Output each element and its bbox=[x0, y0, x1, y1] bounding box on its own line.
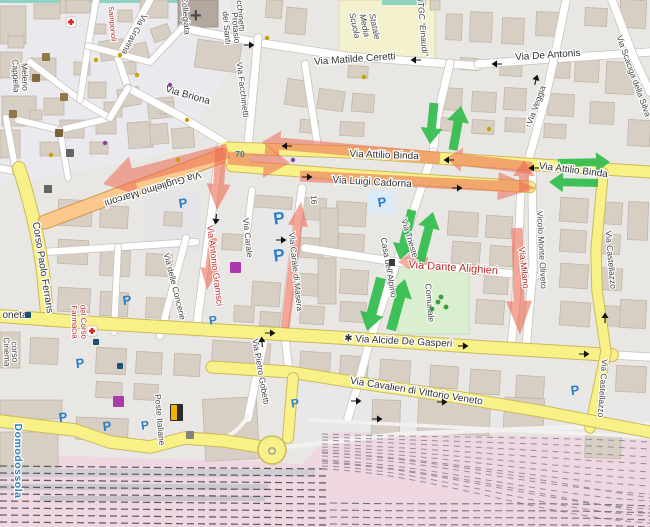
svg-text:oneta: oneta bbox=[2, 310, 27, 321]
svg-text:70: 70 bbox=[235, 149, 245, 159]
svg-text:Melerio: Melerio bbox=[20, 63, 31, 91]
svg-text:16: 16 bbox=[309, 195, 320, 206]
svg-text:corso: corso bbox=[10, 341, 21, 362]
svg-text:Farmacia: Farmacia bbox=[69, 305, 79, 339]
svg-text:Domodossola: Domodossola bbox=[12, 424, 24, 499]
